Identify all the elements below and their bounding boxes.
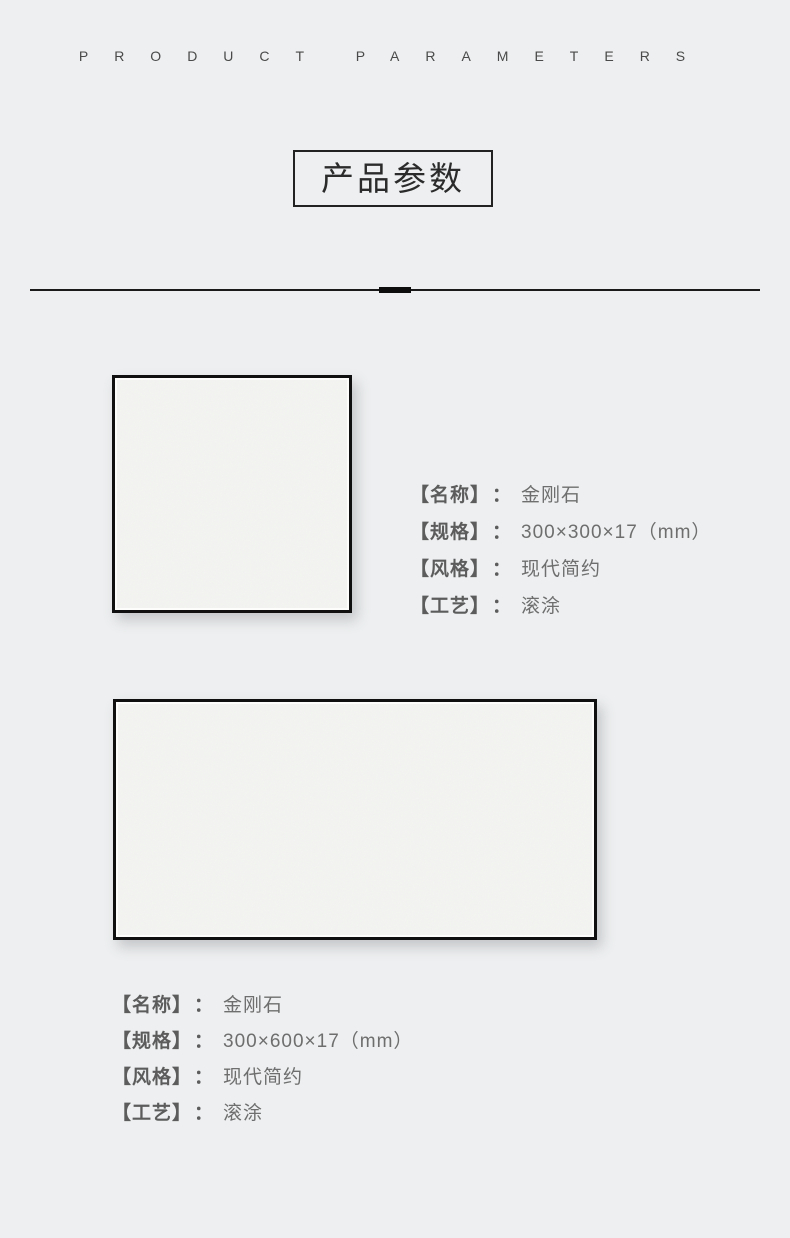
spec-label: 【名称】 (112, 990, 192, 1017)
spec-colon: ： (492, 554, 511, 581)
spec-colon: ： (194, 1098, 213, 1125)
spec-row-name: 【名称】 ： 金刚石 (410, 475, 711, 512)
section-title-box: 产品参数 (293, 150, 493, 207)
spec-colon: ： (492, 480, 511, 507)
spec-label: 【风格】 (112, 1062, 192, 1089)
spec-row-size: 【规格】 ： 300×600×17（mm） (112, 1021, 413, 1057)
spec-colon: ： (194, 990, 213, 1017)
section-title: 产品参数 (321, 162, 465, 195)
spec-value: 金刚石 (521, 480, 581, 507)
spec-value: 滚涂 (223, 1098, 263, 1125)
spec-value: 现代简约 (223, 1062, 303, 1089)
spec-label: 【工艺】 (112, 1098, 192, 1125)
spec-row-size: 【规格】 ： 300×300×17（mm） (410, 512, 711, 549)
spec-label: 【规格】 (112, 1026, 192, 1053)
spec-value: 现代简约 (521, 554, 601, 581)
spec-colon: ： (492, 591, 511, 618)
spec-colon: ： (492, 517, 511, 544)
spec-row-style: 【风格】 ： 现代简约 (410, 549, 711, 586)
product-2-specs: 【名称】 ： 金刚石 【规格】 ： 300×600×17（mm） 【风格】 ： … (112, 985, 413, 1129)
spec-label: 【工艺】 (410, 591, 490, 618)
spec-label: 【名称】 (410, 480, 490, 507)
spec-value: 300×300×17（mm） (521, 517, 711, 544)
section-divider (30, 287, 760, 293)
spec-row-name: 【名称】 ： 金刚石 (112, 985, 413, 1021)
spec-value: 300×600×17（mm） (223, 1026, 413, 1053)
spec-label: 【风格】 (410, 554, 490, 581)
divider-center-accent (379, 287, 411, 293)
spec-row-style: 【风格】 ： 现代简约 (112, 1057, 413, 1093)
spec-colon: ： (194, 1026, 213, 1053)
subtitle-english: PRODUCT PARAMETERS (0, 48, 790, 64)
product-parameters-page: PRODUCT PARAMETERS 产品参数 【名称】 ： 金刚石 【规格】 … (0, 0, 790, 1238)
spec-value: 滚涂 (521, 591, 561, 618)
product-image-tile-300x300 (112, 375, 352, 613)
spec-colon: ： (194, 1062, 213, 1089)
product-1-specs: 【名称】 ： 金刚石 【规格】 ： 300×300×17（mm） 【风格】 ： … (410, 475, 711, 623)
spec-row-process: 【工艺】 ： 滚涂 (410, 586, 711, 623)
product-image-tile-300x600 (113, 699, 597, 940)
spec-row-process: 【工艺】 ： 滚涂 (112, 1093, 413, 1129)
spec-label: 【规格】 (410, 517, 490, 544)
tile-texture (115, 378, 349, 610)
spec-value: 金刚石 (223, 990, 283, 1017)
tile-texture (116, 702, 594, 937)
